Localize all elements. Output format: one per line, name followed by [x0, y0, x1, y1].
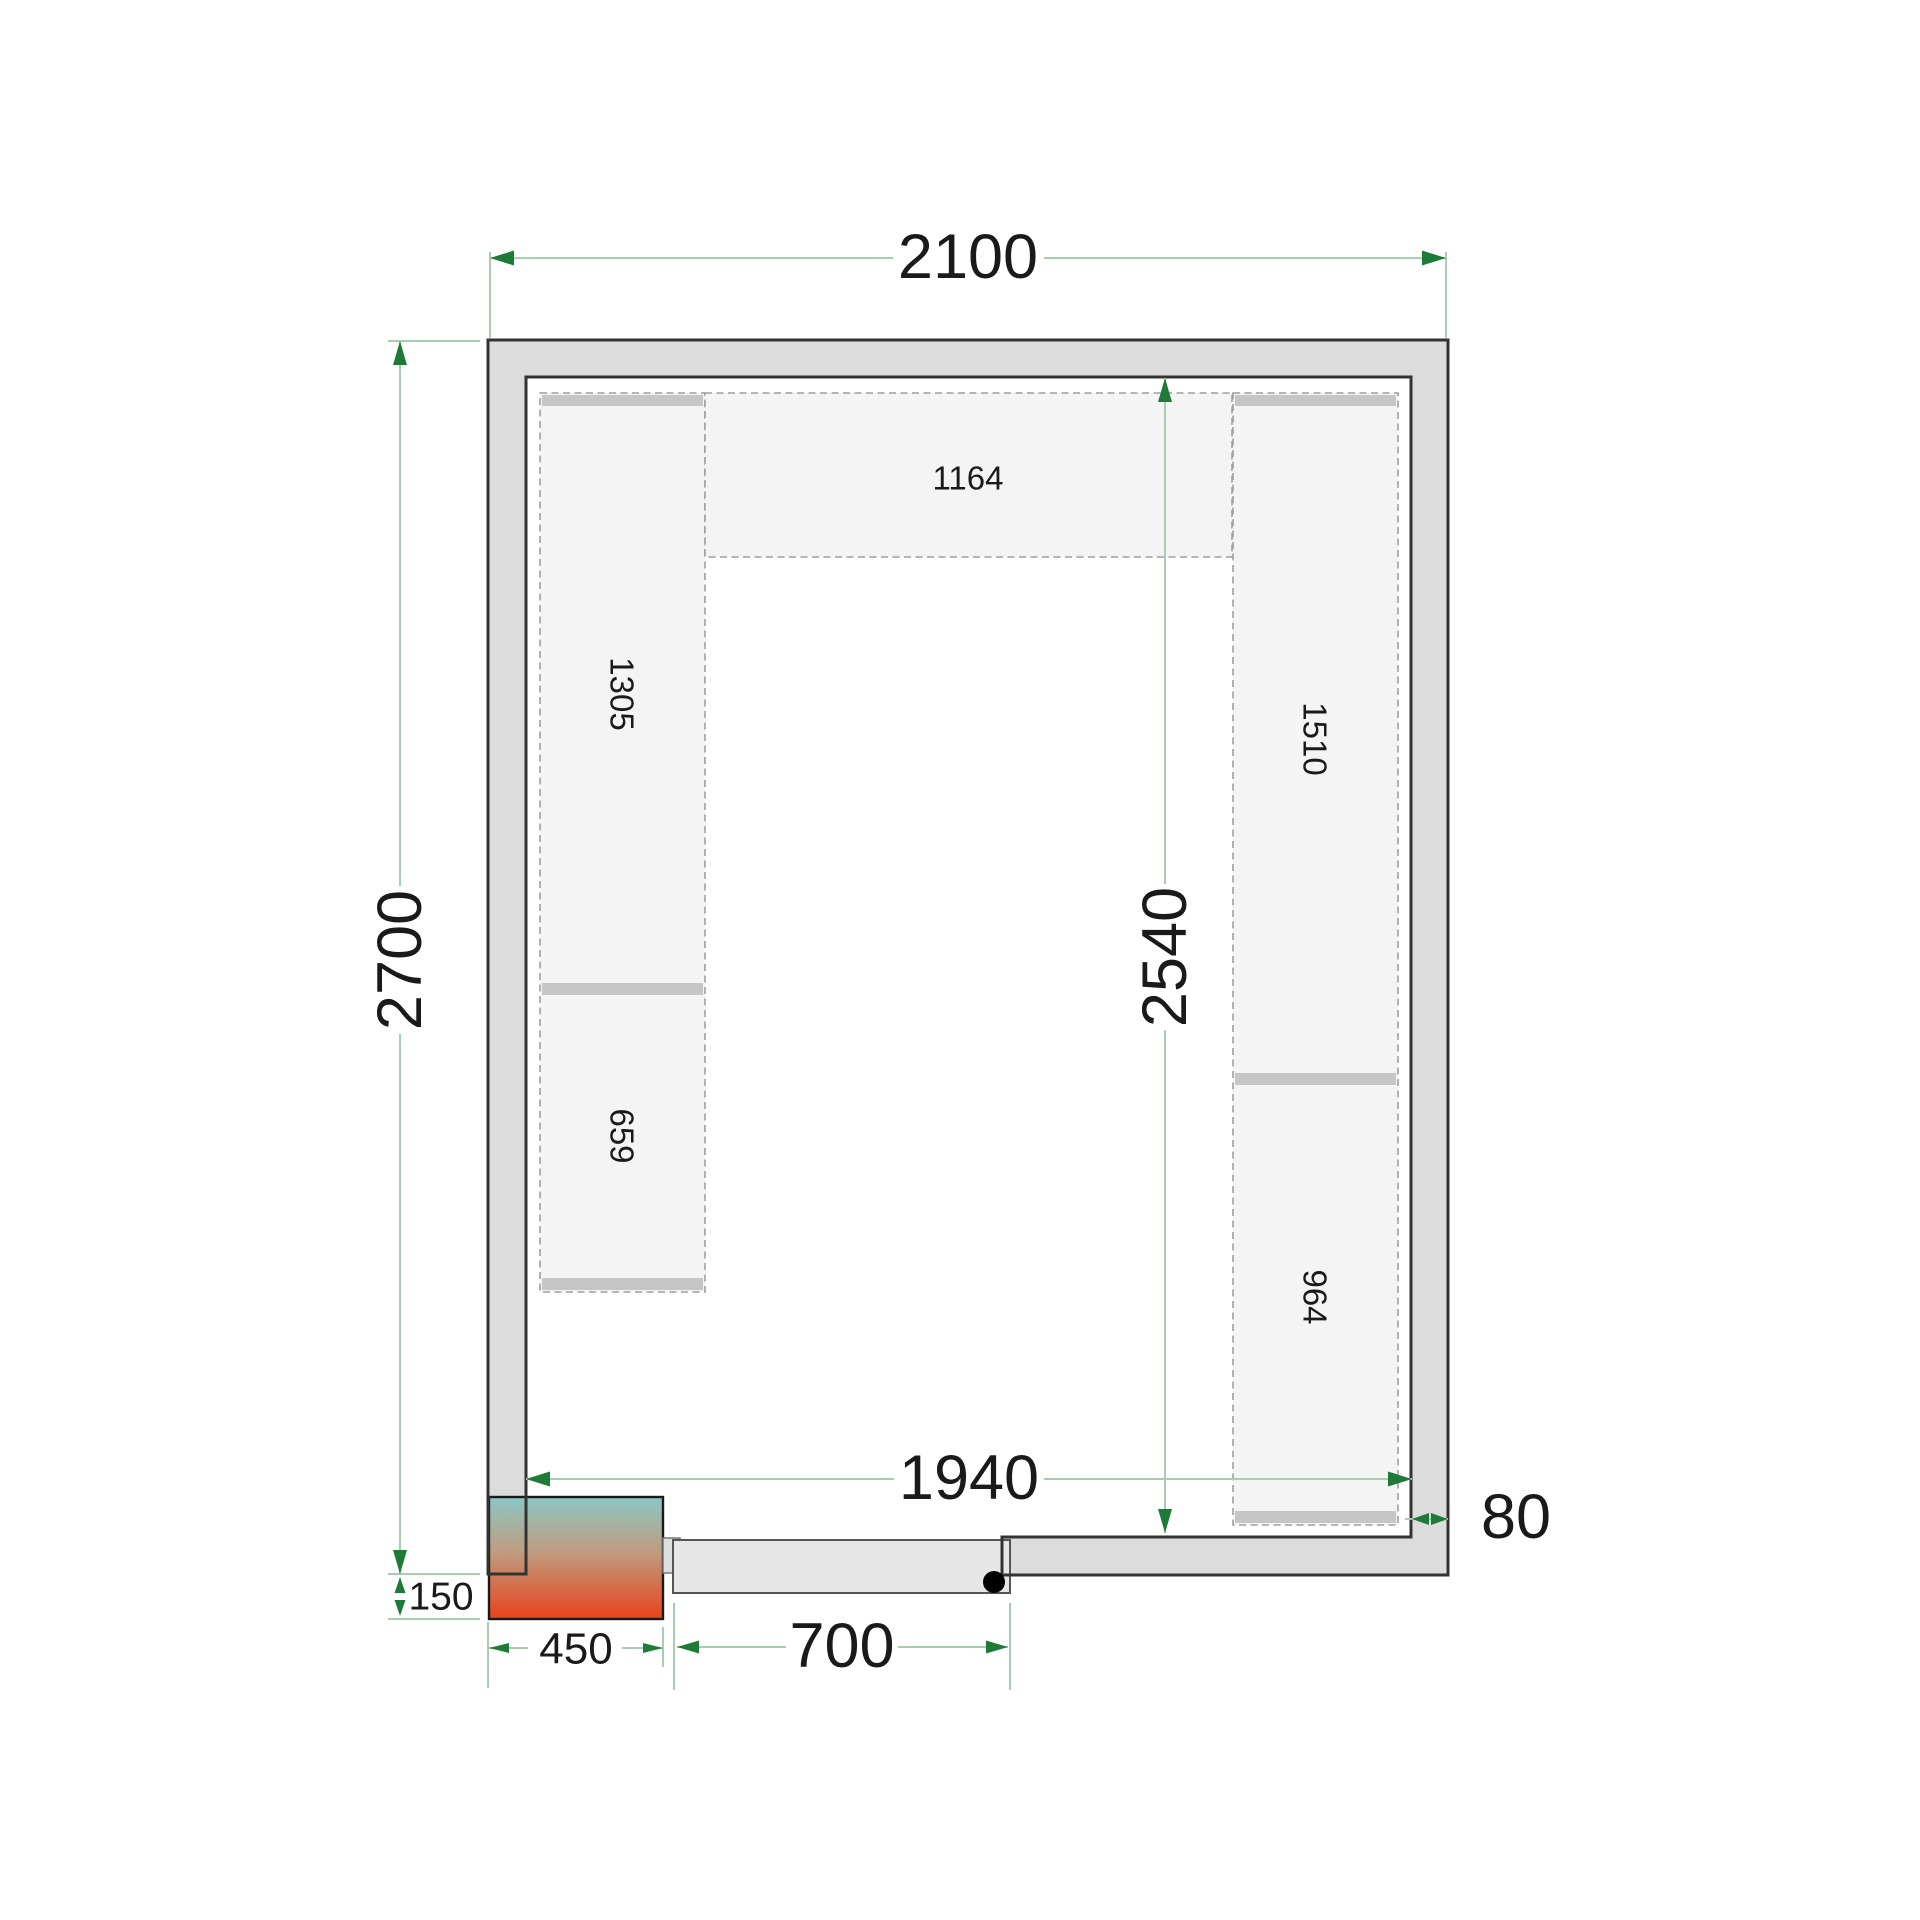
outer-width-label: 2100 — [898, 222, 1038, 292]
shelf-right-upper-length-label: 1510 — [1297, 702, 1334, 775]
shelf-right — [1233, 393, 1398, 1525]
shelf-left-top-bar — [542, 395, 703, 406]
inner-height-label: 2540 — [1130, 887, 1200, 1027]
arrow-down-icon — [393, 1550, 407, 1574]
wall-thickness-label: 80 — [1481, 1482, 1551, 1552]
door-pivot-dot — [983, 1571, 1005, 1593]
shelving: 1164 1305 659 1510 964 — [540, 393, 1398, 1525]
arrow-left-icon — [490, 251, 514, 266]
cooling-unit — [489, 1497, 663, 1619]
shelf-right-bottom-bar — [1235, 1511, 1396, 1523]
door-width-label: 700 — [789, 1611, 894, 1681]
shelf-right-top-bar — [1235, 395, 1396, 406]
arrow-left-icon — [677, 1641, 699, 1654]
arrow-right-icon — [643, 1643, 663, 1653]
shelf-left-bottom-bar — [542, 1278, 703, 1290]
arrow-up-icon — [395, 1577, 406, 1593]
unit-width-label: 450 — [539, 1625, 612, 1674]
shelf-top-length-label: 1164 — [933, 460, 1004, 497]
arrow-down-icon — [395, 1600, 406, 1616]
floor-plan-page: 1164 1305 659 1510 964 — [0, 0, 1920, 1920]
arrow-right-icon — [1422, 251, 1446, 266]
inner-width-label: 1940 — [899, 1443, 1039, 1513]
unit-offset-label: 150 — [408, 1576, 473, 1619]
shelf-left-upper-length-label: 1305 — [604, 657, 641, 730]
cold-room-floor-plan: 1164 1305 659 1510 964 — [0, 0, 1920, 1920]
arrow-right-icon — [1388, 1472, 1412, 1487]
shelf-left-lower-length-label: 659 — [604, 1108, 641, 1163]
shelf-right-divider-bar — [1235, 1073, 1396, 1085]
arrow-left-icon — [526, 1472, 550, 1487]
shelf-left-divider-bar — [542, 983, 703, 995]
outer-height-label: 2700 — [365, 890, 435, 1030]
arrow-left-icon — [489, 1643, 509, 1653]
arrow-down-icon — [1158, 1509, 1172, 1533]
arrow-up-icon — [393, 341, 407, 365]
arrow-up-icon — [1158, 378, 1172, 402]
arrow-right-icon — [986, 1641, 1008, 1654]
shelf-labels: 1164 1305 659 1510 964 — [604, 460, 1334, 1325]
shelf-right-lower-length-label: 964 — [1297, 1269, 1334, 1324]
door-leaf — [673, 1540, 1010, 1593]
